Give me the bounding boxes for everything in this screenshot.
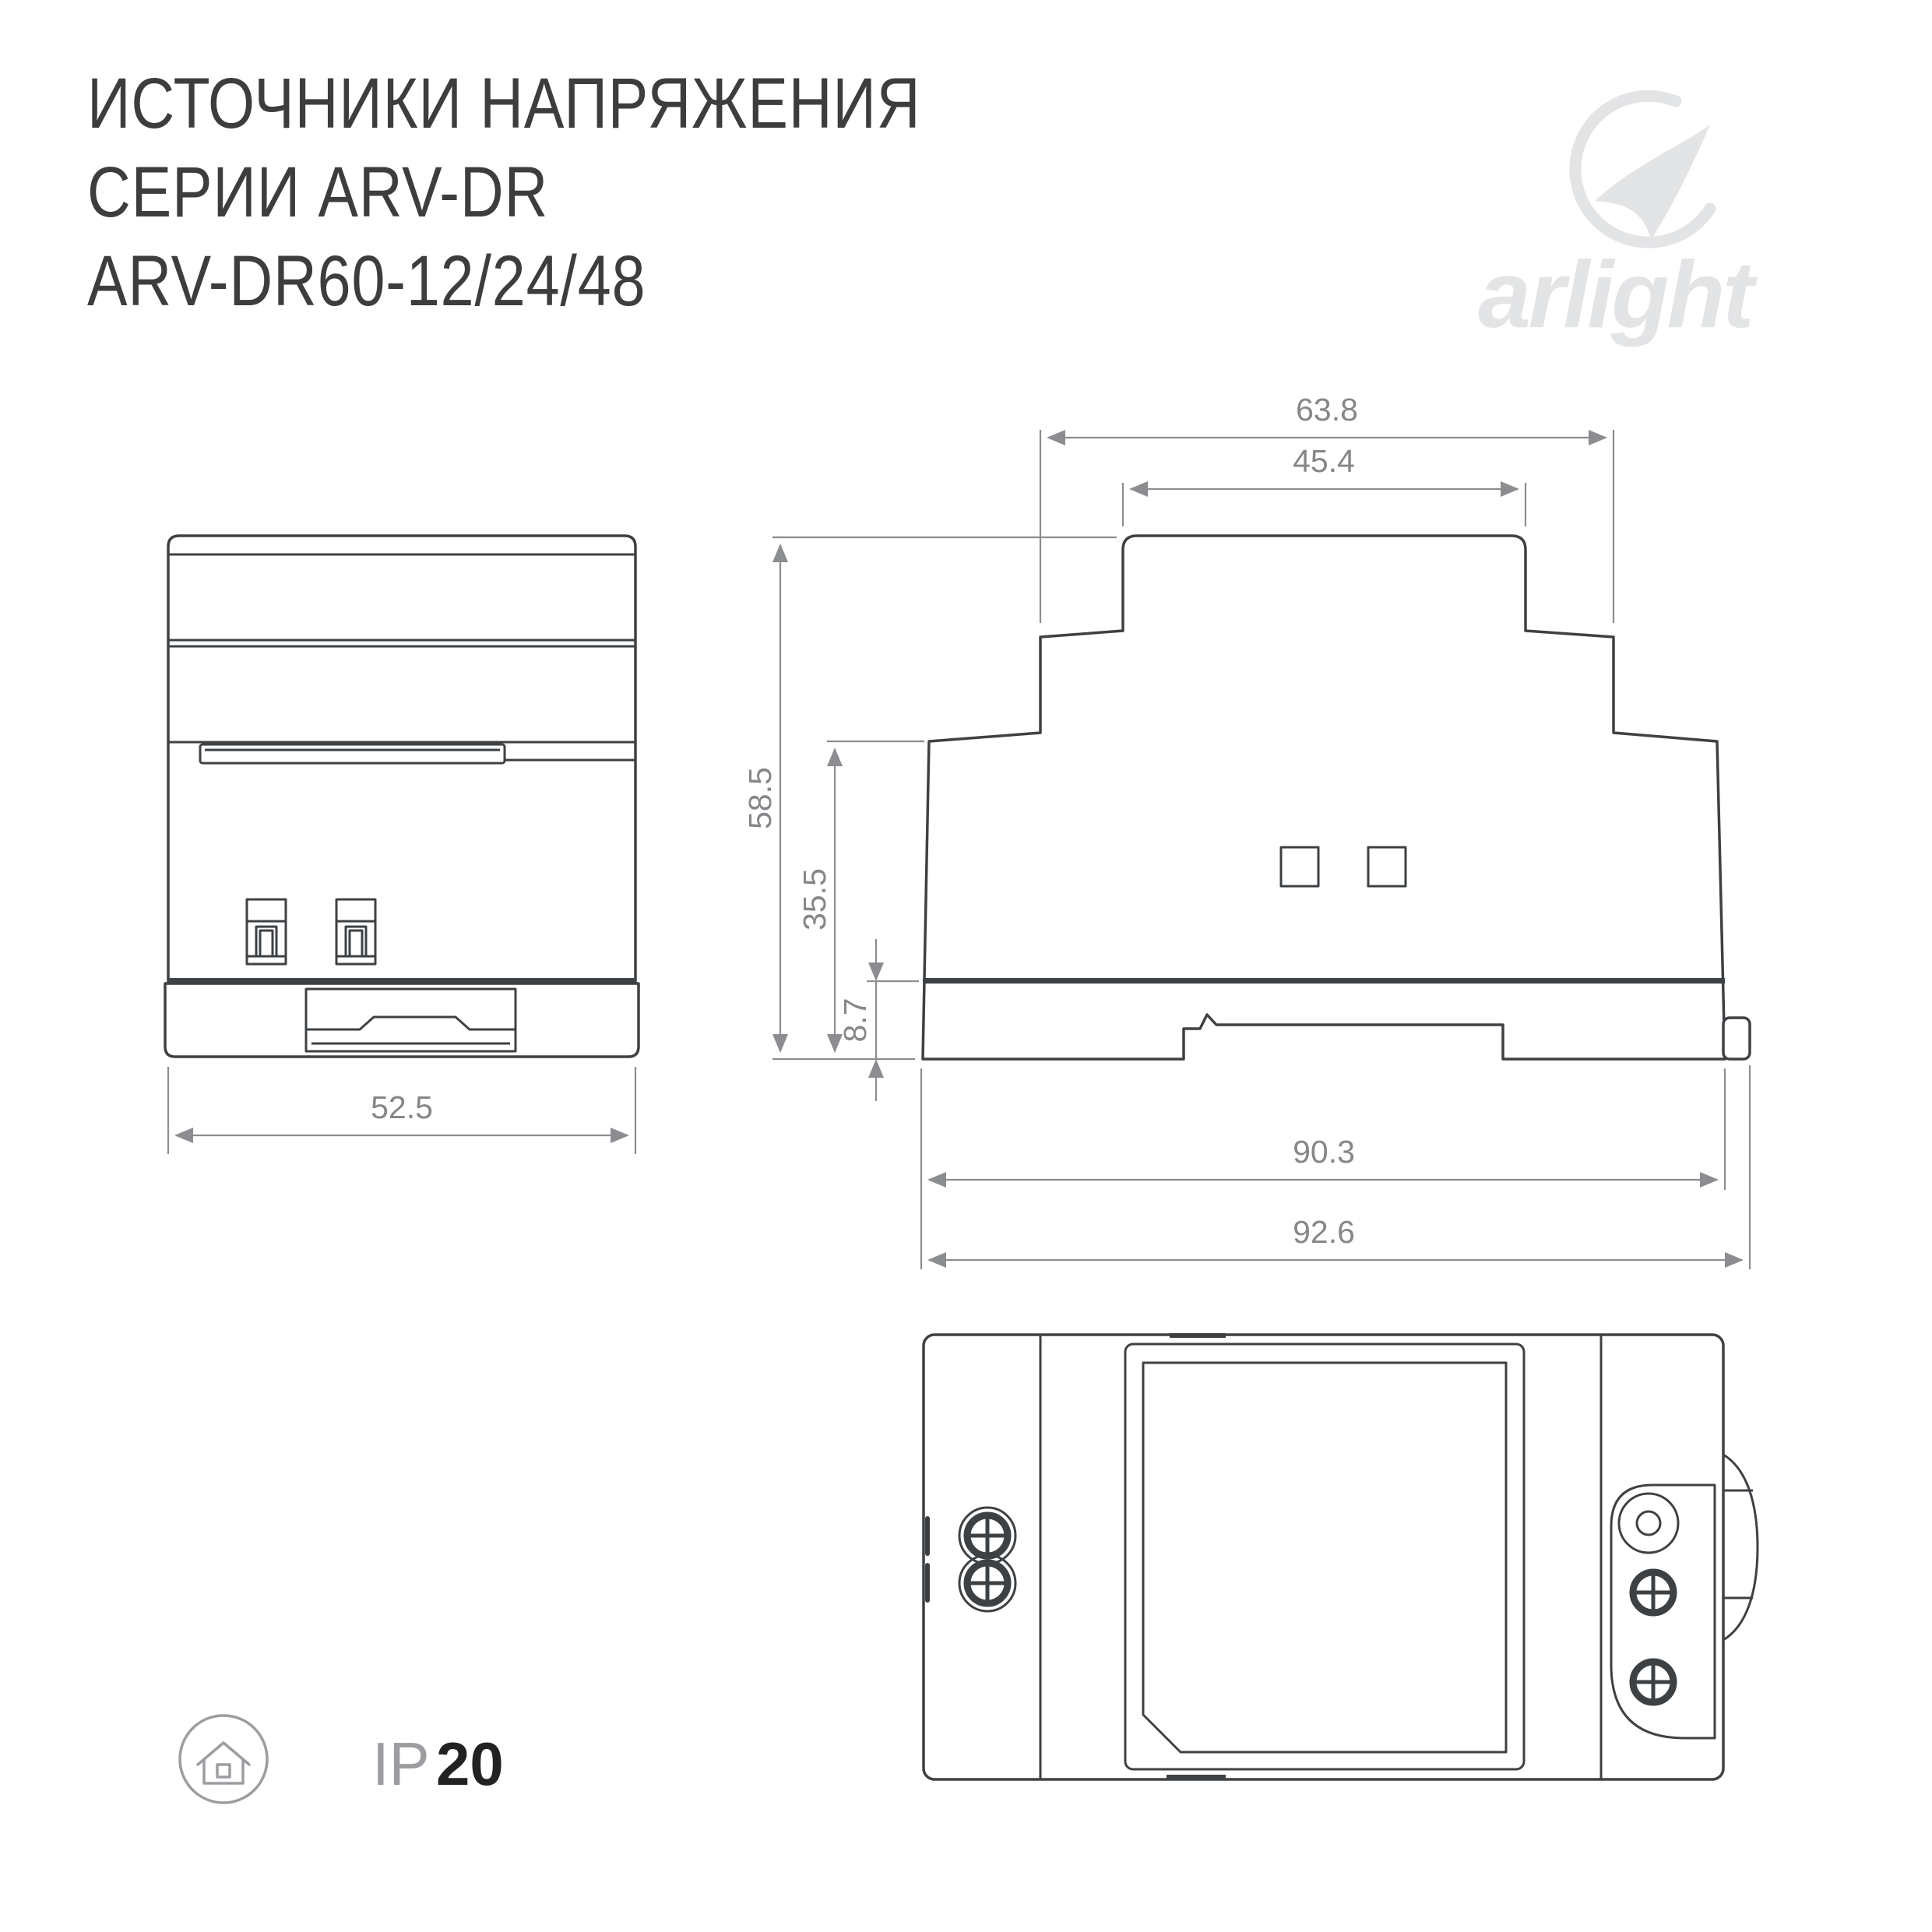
input-terminal-screws: [959, 1508, 1015, 1611]
terminal-slot-inner: [260, 931, 273, 956]
output-terminal-panel: [1611, 1485, 1715, 1738]
dimension-value: 35.5: [797, 868, 832, 931]
arlight-logo: arlight: [1478, 96, 1758, 347]
bottom-top-notch: [1170, 1333, 1226, 1338]
ip-prefix: IP: [372, 1730, 430, 1798]
bottom-label-area-inner: [1143, 1363, 1506, 1752]
terminal-slot-inner: [350, 931, 362, 956]
adjust-pot-inner: [1637, 1511, 1660, 1535]
bottom-bottom-notch: [1167, 1775, 1226, 1779]
din-clip-outline: [306, 989, 516, 1051]
bottom-view: [924, 1333, 1758, 1779]
dim-top-outer: 63.8: [1040, 392, 1614, 623]
bottom-body-outline: [924, 1335, 1723, 1779]
vent-slit-1: [925, 1516, 930, 1556]
screw-icon: [1633, 1572, 1673, 1613]
side-vent-square-1: [1281, 847, 1318, 886]
dimension-value: 63.8: [1296, 392, 1358, 428]
dimension-value: 52.5: [371, 1089, 433, 1125]
adjust-pot-outer: [1619, 1494, 1678, 1553]
house-icon: [198, 1743, 249, 1783]
screw-icon: [967, 1515, 1008, 1556]
dimension-value: 92.6: [1293, 1214, 1355, 1250]
din-clip-mesa-line: [306, 1017, 516, 1029]
side-view: 63.8 45.4 58.5 35.5: [742, 392, 1750, 1269]
vent-slit-2: [925, 1563, 930, 1603]
dimension-value: 45.4: [1293, 443, 1355, 479]
bottom-din-clip: [1723, 1455, 1758, 1640]
dimension-value: 8.7: [837, 998, 873, 1043]
dim-front-width: 52.5: [168, 1067, 635, 1154]
din-clip-bulge: [1723, 1455, 1758, 1640]
badge-circle: [180, 1716, 267, 1803]
dim-rail-offset: 8.7: [837, 939, 919, 1101]
front-din-clip: [306, 989, 516, 1051]
side-vent-square-2: [1368, 847, 1406, 886]
dim-top-inner: 45.4: [1123, 443, 1526, 526]
logo-wordmark: arlight: [1478, 241, 1758, 347]
bottom-label-area-outer: [1125, 1344, 1524, 1769]
dimension-value: 58.5: [742, 767, 778, 829]
front-flange-outline: [165, 984, 639, 1057]
front-view: 52.5: [165, 536, 639, 1154]
front-terminal-2: [336, 899, 375, 964]
ip20-badge: IP 20: [180, 1716, 504, 1803]
screw-icon: [967, 1563, 1008, 1603]
datasheet-page: ИСТОЧНИКИ НАПРЯЖЕНИЯ СЕРИИ ARV-DR ARV-DR…: [0, 0, 1932, 1932]
front-terminal-1: [247, 899, 286, 964]
side-rail-tab: [1723, 1018, 1750, 1059]
side-rail-heavy-line: [923, 978, 1725, 984]
screw-icon: [1633, 1662, 1673, 1702]
technical-drawing-canvas: arlight: [0, 0, 1932, 1932]
dimension-value: 90.3: [1293, 1134, 1355, 1170]
front-label-strip: [200, 744, 505, 763]
ip-rating: 20: [436, 1730, 504, 1798]
